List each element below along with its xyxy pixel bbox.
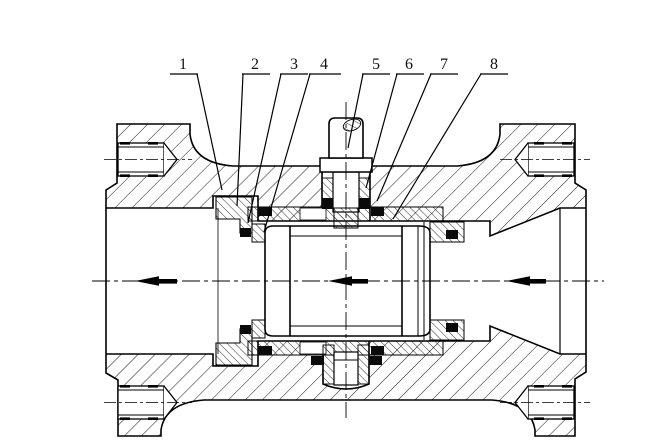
callout-label-5: 5: [372, 56, 380, 73]
callout-label-8: 8: [490, 56, 498, 73]
callout-label-2: 2: [251, 56, 259, 73]
callout-label-1: 1: [179, 56, 187, 73]
callout-label-3: 3: [290, 56, 298, 73]
callout-label-7: 7: [440, 56, 448, 73]
valve-section-drawing: 1 2 3 4 5 6 7 8: [0, 0, 660, 440]
packing-left: [322, 178, 333, 200]
callout-label-4: 4: [320, 56, 328, 73]
callout-label-6: 6: [405, 56, 413, 73]
drawing-canvas: 1 2 3 4 5 6 7 8: [0, 0, 660, 440]
